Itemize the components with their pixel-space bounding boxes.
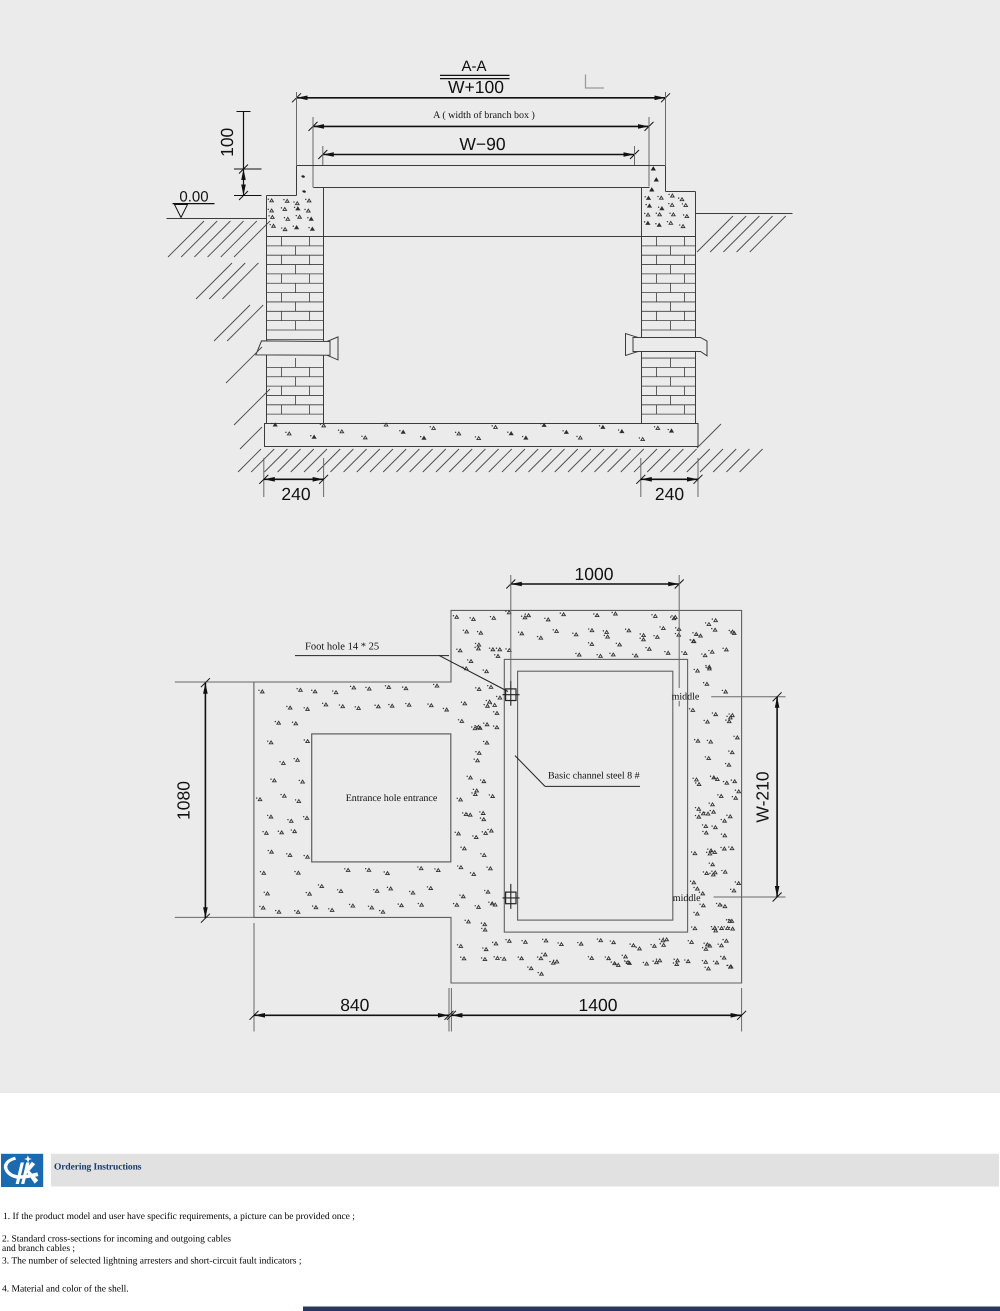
svg-text:840: 840	[340, 995, 369, 1015]
svg-text:2. Standard cross-sections for: 2. Standard cross-sections for incoming …	[2, 1235, 231, 1245]
svg-text:W−90: W−90	[459, 134, 505, 154]
svg-text:Ordering Instructions: Ordering Instructions	[54, 1162, 142, 1172]
svg-text:and branch cables ;: and branch cables ;	[2, 1244, 75, 1254]
svg-text:1. If the product model and us: 1. If the product model and user have sp…	[3, 1212, 355, 1222]
svg-text:4. Material and color of the s: 4. Material and color of the shell.	[2, 1285, 129, 1295]
svg-text:middle: middle	[673, 893, 701, 904]
svg-text:Basic channel steel 8 #: Basic channel steel 8 #	[548, 771, 640, 782]
svg-text:Foot hole 14 * 25: Foot hole 14 * 25	[305, 642, 379, 653]
svg-text:W-210: W-210	[753, 771, 773, 822]
svg-text:0.00: 0.00	[179, 189, 208, 206]
svg-text:1080: 1080	[174, 781, 194, 820]
svg-text:A-A: A-A	[461, 58, 486, 75]
svg-text:W+100: W+100	[448, 77, 504, 97]
svg-text:100: 100	[217, 127, 237, 156]
svg-text:1000: 1000	[575, 564, 614, 584]
svg-text:A ( width of branch box ): A ( width of branch box )	[433, 110, 535, 121]
svg-text:240: 240	[281, 484, 310, 504]
svg-text:1400: 1400	[579, 995, 618, 1015]
svg-text:240: 240	[655, 484, 684, 504]
svg-text:3. The number of selected ligh: 3. The number of selected lightning arre…	[2, 1257, 302, 1267]
svg-text:middle: middle	[672, 692, 700, 703]
svg-text:Entrance hole entrance: Entrance hole entrance	[346, 793, 438, 804]
